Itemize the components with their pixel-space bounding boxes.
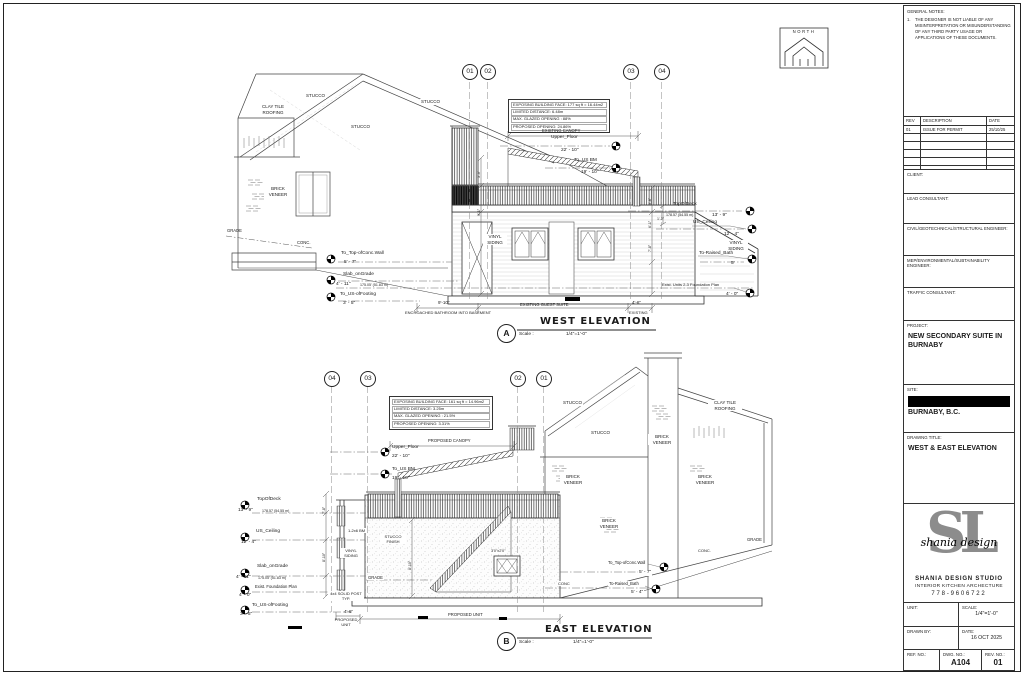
field-label: LEAD CONSULTANT: xyxy=(904,194,1014,201)
north-arrow-icon xyxy=(780,28,828,68)
dim-label: PROPOSED UNIT xyxy=(332,617,360,627)
site-box: SITE: BURNABY, B.C. xyxy=(903,384,1015,433)
dim-label: EXISTING GUEST SUITE xyxy=(520,302,569,307)
redacted-address xyxy=(908,396,1010,407)
field-label: CLIENT: xyxy=(904,170,1014,177)
dim-label: 8'-10" xyxy=(408,561,412,570)
grid-bubble-04: 04 xyxy=(654,64,670,80)
level-name: To_US BM xyxy=(574,158,597,164)
level-name: Exist. Foundation Plan xyxy=(255,584,297,589)
beam-label: 1-2x6 BM xyxy=(347,528,366,533)
note-line: MAX. GLAZED OPENING : 88% xyxy=(511,116,607,123)
rev-header: DATE xyxy=(987,117,1014,126)
material-label: CLAY TILE ROOFING xyxy=(255,104,291,115)
drawing-title: WEST & EAST ELEVATION xyxy=(904,440,1014,454)
project-name: NEW SECONDARY SUITE IN BURNABY xyxy=(904,328,1014,351)
rev-cell-empty xyxy=(987,158,1014,166)
client-box: CLIENT: xyxy=(903,169,1015,194)
field-label: DRAWING TITLE: xyxy=(904,433,1014,440)
date-cell: DATE: 16 OCT 2025 xyxy=(959,627,1014,649)
level-value: 19' - 10" xyxy=(581,170,599,176)
field-label: REF. NO.: xyxy=(904,650,939,657)
traffic-consultant-box: TRAFFIC CONSULTANT: xyxy=(903,287,1015,321)
rev-cell-empty xyxy=(921,142,987,150)
drawn-by-cell: DRAWN BY: xyxy=(904,627,959,649)
rev-cell-empty xyxy=(921,134,987,142)
grid-bubble-03: 03 xyxy=(623,64,639,80)
level-value: 4' - 0" xyxy=(726,292,738,298)
dim-label: 8'-10" xyxy=(322,553,326,562)
rev-header: DESCRIPTION xyxy=(921,117,987,126)
rev-cell-empty xyxy=(904,134,921,142)
level-value: 12' - 4" xyxy=(241,540,256,546)
drawing-title-box: DRAWING TITLE: WEST & EAST ELEVATION xyxy=(903,432,1015,504)
field-label: SCALE: xyxy=(959,603,1014,610)
field-label: DRAWN BY: xyxy=(904,627,958,634)
material-label: VINYL SIDING xyxy=(483,234,507,245)
studio-logo-box: SL shania design SHANIA DESIGN STUDIO IN… xyxy=(903,503,1015,603)
rev-cell: 25/10/25 xyxy=(987,126,1014,134)
canopy-label: EXISTING CANOPY xyxy=(542,128,580,133)
level-elevation: 178.57 (54.55 m) xyxy=(262,509,289,513)
note-line: LIMITED DISTANCE: 6.48m xyxy=(511,109,607,116)
note-text: THE DESIGNER IS NOT LIABLE OF ANY MISINT… xyxy=(915,17,1011,41)
dim-label: 1'-2" xyxy=(657,217,664,221)
revision-number: 01 xyxy=(982,657,1014,667)
scale-cell: SCALE: 1/4"=1'-0" xyxy=(959,603,1014,626)
field-label: CIVIL/GEOTECHNICAL/STRUCTURAL ENGINEER: xyxy=(904,224,1014,231)
ref-no-cell: REF. NO.: xyxy=(904,650,940,670)
dim-label: 6'-1" xyxy=(648,221,652,228)
level-value: 3' - 5" xyxy=(343,301,355,307)
dim-label: ENCROACHED BATHROOM INTO BASEMENT xyxy=(405,310,491,315)
drawing-sheet: NORTH 01 02 03 04 EXPOSING BUILDING FACE… xyxy=(0,0,1024,675)
sheet-date-value: 16 OCT 2025 xyxy=(959,634,1014,641)
note-number: 1. xyxy=(907,17,915,41)
level-name: To_US BM xyxy=(392,467,415,473)
rev-cell: ISSUE FOR PERMIT xyxy=(921,126,987,134)
rev-cell-empty xyxy=(987,134,1014,142)
mep-engineer-box: MEP/ENVIRONMENTAL/SUBTAINABILITY ENGINEE… xyxy=(903,255,1015,288)
dim-label: 7'-8" xyxy=(322,507,326,514)
material-label: BRICK VENEER xyxy=(264,186,292,197)
sheet-number: A104 xyxy=(940,657,981,667)
site-name: BURNABY, B.C. xyxy=(904,409,1014,416)
level-value: 13' - 9" xyxy=(712,213,727,219)
level-value: 19' - 10" xyxy=(392,476,410,482)
structural-engineer-box: CIVIL/GEOTECHNICAL/STRUCTURAL ENGINEER: xyxy=(903,223,1015,256)
material-label: CONC. xyxy=(697,548,712,553)
scale-value: 1/4"=1'-0" xyxy=(566,332,587,337)
scale-label: Scale : xyxy=(519,332,534,337)
view-bubble-b: B xyxy=(497,632,516,651)
level-name: To_Top-ofConc.Wall xyxy=(341,251,384,257)
grade-label: GRADE xyxy=(367,575,384,580)
grid-bubble-01: 01 xyxy=(462,64,478,80)
dim-label: 3'-8" xyxy=(648,198,652,205)
level-name: TopOfDeck xyxy=(257,497,281,503)
note-line: EXPOSING BUILDING FACE: 177 sq ft = 16.4… xyxy=(511,102,607,109)
revision-table: REV DESCRIPTION DATE 01 ISSUE FOR PERMIT… xyxy=(903,116,1015,170)
rev-cell-empty xyxy=(904,150,921,158)
note-line: LIMITED DISTANCE: 3.25m xyxy=(392,406,490,413)
grid-bubble-01: 01 xyxy=(536,371,552,387)
field-label: TRAFFIC CONSULTANT: xyxy=(904,288,1014,295)
east-elevation-title: EAST ELEVATION xyxy=(545,624,653,635)
field-label: DATE: xyxy=(959,627,1014,634)
title-block: GENERAL NOTES: 1. THE DESIGNER IS NOT LI… xyxy=(903,6,1015,671)
material-label: BRICK VENEER xyxy=(560,474,586,485)
rev-cell-empty xyxy=(904,158,921,166)
drawn-date-row: DRAWN BY: DATE: 16 OCT 2025 xyxy=(903,626,1015,650)
unit-cell: UNIT: xyxy=(904,603,959,626)
material-label: CONC. xyxy=(296,240,312,245)
studio-script-signature: shania design xyxy=(904,536,1014,549)
canopy-label: PROPOSED CANOPY xyxy=(428,438,471,443)
rev-cell-empty xyxy=(987,150,1014,158)
rev-cell: 01 xyxy=(904,126,921,134)
rev-no-cell: REV. NO.: 01 xyxy=(982,650,1014,670)
level-value: 4' - 11" xyxy=(336,282,351,288)
level-name: Exist. Units 2-3 Foundation Plan xyxy=(662,282,719,287)
window-size-label: 3'0"x2'0" xyxy=(490,549,507,554)
general-notes-box: GENERAL NOTES: 1. THE DESIGNER IS NOT LI… xyxy=(903,5,1015,117)
level-value: 4' - 0" xyxy=(239,593,251,599)
level-name: US_Ceiling xyxy=(256,529,280,535)
dim-label: 4'-6" xyxy=(344,609,353,615)
project-box: PROJECT: NEW SECONDARY SUITE IN BURNABY xyxy=(903,320,1015,385)
dim-label: EXISTING xyxy=(629,310,648,315)
north-label: NORTH xyxy=(782,29,826,34)
numbers-row: REF. NO.: DWG. NO.: A104 REV. NO.: 01 xyxy=(903,649,1015,671)
level-value: 22' - 10" xyxy=(392,454,410,460)
rev-cell-empty xyxy=(987,142,1014,150)
grid-bubble-02: 02 xyxy=(480,64,496,80)
level-name: To-Raised_Bath xyxy=(699,251,733,257)
level-value: 12' - 4" xyxy=(724,232,739,238)
scale-label: Scale : xyxy=(519,640,534,645)
level-name: US_Ceiling xyxy=(693,220,717,226)
level-name: Upper_Floor xyxy=(392,445,419,451)
sheet-scale-value: 1/4"=1'-0" xyxy=(959,610,1014,617)
dim-label: PROPOSED UNIT xyxy=(448,612,483,617)
level-name: To_US-ofFooting xyxy=(252,603,288,609)
material-label: STUCCO xyxy=(350,124,371,130)
grid-bubble-04: 04 xyxy=(324,371,340,387)
field-label: UNIT: xyxy=(904,603,958,610)
lead-consultant-box: LEAD CONSULTANT: xyxy=(903,193,1015,224)
dim-label: 3'-0" xyxy=(477,171,481,178)
field-label: REV. NO.: xyxy=(982,650,1014,657)
material-label: STUCCO xyxy=(420,99,441,105)
material-label: STUCCO xyxy=(305,93,326,99)
level-elevation: 178.57 (54.55 m) xyxy=(666,213,693,217)
material-label: STUCCO FINISH xyxy=(380,534,406,544)
rev-cell-empty xyxy=(904,142,921,150)
level-name: TopOfDeck xyxy=(673,202,697,208)
material-label: BRICK VENEER xyxy=(692,474,718,485)
material-label: STUCCO xyxy=(590,430,611,436)
level-value: 5' - 7" xyxy=(344,260,356,266)
dim-label: 4'-6" xyxy=(632,300,641,306)
level-name: To_US-ofFooting xyxy=(340,292,376,298)
dwg-no-cell: DWG. NO.: A104 xyxy=(940,650,982,670)
material-label: CLAY TILE ROOFING xyxy=(708,400,742,411)
grid-bubble-02: 02 xyxy=(510,371,526,387)
field-label: SITE: xyxy=(904,385,1014,392)
level-value: 5' xyxy=(731,261,735,267)
rev-cell-empty xyxy=(921,158,987,166)
field-label: MEP/ENVIRONMENTAL/SUBTAINABILITY ENGINEE… xyxy=(904,256,1014,268)
note-line: EXPOSING BUILDING FACE: 161 sq ft = 14.9… xyxy=(392,399,490,406)
rev-header: REV xyxy=(904,117,921,126)
level-value: 5' - 4" xyxy=(630,590,644,596)
level-value: 3' - 5" xyxy=(240,612,252,618)
west-elevation-title: WEST ELEVATION xyxy=(540,316,651,327)
level-name: Slab_onGrade xyxy=(257,564,288,570)
material-label: VINYL SIDING xyxy=(340,548,362,558)
studio-name: SHANIA DESIGN STUDIO xyxy=(904,576,1014,582)
scale-value: 1/4"=1'-0" xyxy=(573,640,594,645)
level-name: Slab_onGrade xyxy=(343,272,374,278)
note-line: MAX. GLAZED OPENING : 21.5% xyxy=(392,413,490,420)
level-value: 22' - 10" xyxy=(561,148,579,154)
level-value: 5' - 7" xyxy=(638,570,652,576)
grid-bubble-03: 03 xyxy=(360,371,376,387)
material-label: BRICK VENEER xyxy=(596,518,622,529)
material-label: CONC xyxy=(557,581,571,586)
note-line: PROPOSED OPENING: 3.31% xyxy=(392,421,490,428)
studio-monogram-icon: SL xyxy=(904,504,1014,563)
material-label: STUCCO xyxy=(562,400,583,406)
level-elevation: 175.05' (51.83 m) xyxy=(258,576,286,580)
level-elevation: 175.05' (51.83 m) xyxy=(360,283,388,287)
grade-label: GRADE xyxy=(746,537,763,542)
level-name: To_Top-ofConc.Wall xyxy=(607,560,646,565)
material-label: VINYL SIDING xyxy=(724,240,748,251)
field-label: DWG. NO.: xyxy=(940,650,981,657)
field-label: PROJECT: xyxy=(904,321,1014,328)
east-elevation-drawing xyxy=(241,353,772,638)
post-label: 4x4 SOLID POST TYP. xyxy=(328,591,364,601)
level-name: Upper_Floor xyxy=(551,135,578,141)
general-notes-title: GENERAL NOTES: xyxy=(904,6,1014,16)
dim-label: 9'-10" xyxy=(438,300,449,306)
level-name: To-Raised_Bath xyxy=(608,581,640,586)
rev-cell-empty xyxy=(921,150,987,158)
level-value: 13' - 9" xyxy=(238,508,253,514)
studio-tagline: INTERIOR KITCHEN ARCHECTURE xyxy=(904,584,1014,589)
view-bubble-a: A xyxy=(497,324,516,343)
dim-label: 7'-8" xyxy=(648,245,652,252)
grade-label: GRADE xyxy=(227,228,242,233)
studio-phone: 778-9606722 xyxy=(904,591,1014,597)
unit-scale-row: UNIT: SCALE: 1/4"=1'-0" xyxy=(903,602,1015,627)
dim-label: 9'-1" xyxy=(477,209,481,216)
material-label: BRICK VENEER xyxy=(648,434,676,445)
east-exposing-face-note: EXPOSING BUILDING FACE: 161 sq ft = 14.9… xyxy=(389,396,493,430)
level-value: 4' - 11" xyxy=(236,575,251,581)
